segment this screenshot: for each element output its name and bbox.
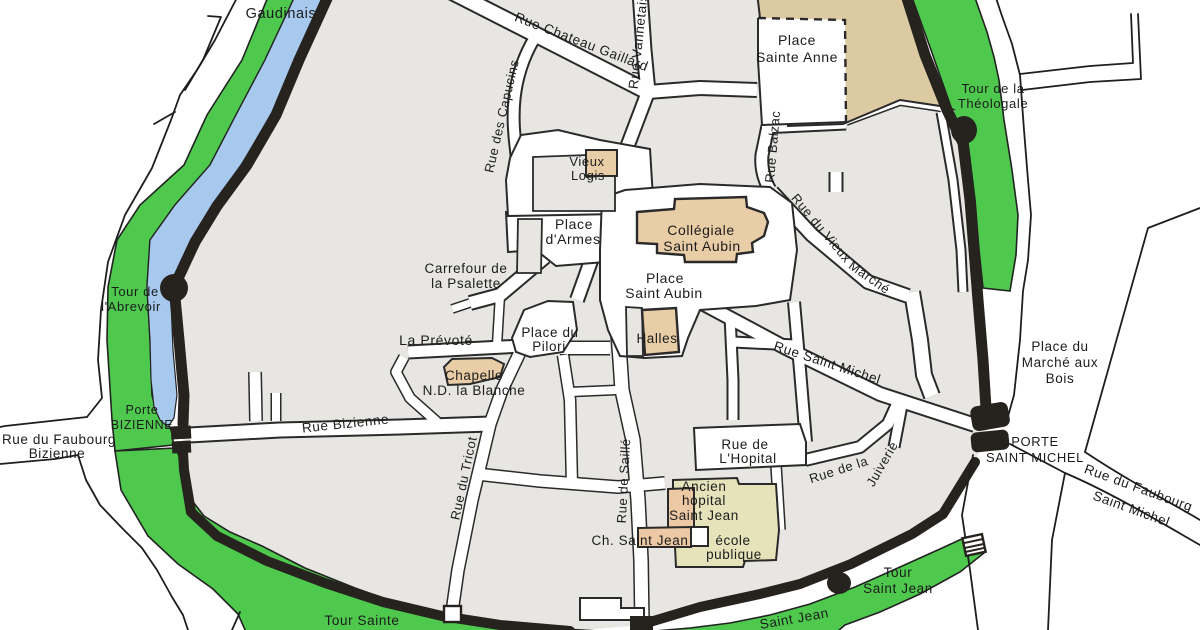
svg-text:Saint Aubin: Saint Aubin (663, 238, 740, 254)
svg-text:Tour Sainte: Tour Sainte (325, 613, 400, 628)
svg-text:PORTE: PORTE (1011, 434, 1059, 449)
svg-text:Tour: Tour (884, 565, 913, 580)
svg-text:hopital: hopital (682, 493, 726, 508)
svg-text:Gaudinais: Gaudinais (246, 6, 317, 22)
svg-text:Chapelle: Chapelle (445, 368, 503, 383)
svg-text:Marché aux: Marché aux (1022, 355, 1099, 370)
svg-text:Place: Place (555, 216, 593, 232)
svg-text:Place du: Place du (521, 325, 578, 340)
svg-text:Bois: Bois (1046, 371, 1075, 386)
svg-text:Carrefour de: Carrefour de (425, 261, 508, 276)
svg-text:publique: publique (706, 547, 762, 562)
svg-text:BIZIENNE: BIZIENNE (111, 418, 173, 432)
svg-text:Saint Aubin: Saint Aubin (625, 285, 702, 301)
svg-text:L'Hopital: L'Hopital (719, 451, 777, 466)
svg-text:Porte: Porte (126, 403, 159, 417)
svg-text:Place: Place (778, 32, 816, 48)
svg-text:SAINT MICHEL: SAINT MICHEL (986, 450, 1084, 465)
svg-text:Tour de la: Tour de la (961, 81, 1024, 96)
svg-text:Logis: Logis (571, 168, 605, 183)
svg-text:Rue de: Rue de (721, 437, 768, 452)
svg-text:Place du: Place du (1031, 339, 1088, 354)
svg-text:Vieux: Vieux (569, 154, 604, 169)
svg-text:Théologale: Théologale (958, 96, 1028, 111)
svg-text:Bizienne: Bizienne (29, 446, 86, 461)
svg-text:Saint Jean: Saint Jean (669, 508, 739, 523)
svg-text:Saint Jean: Saint Jean (863, 581, 933, 596)
svg-text:d'Armes: d'Armes (545, 231, 600, 247)
svg-text:Sainte Anne: Sainte Anne (756, 49, 838, 65)
svg-text:Ch. Saint Jean: Ch. Saint Jean (592, 533, 689, 548)
svg-text:Halles: Halles (636, 331, 677, 346)
svg-text:Ancien: Ancien (682, 479, 727, 494)
svg-text:la Psalette: la Psalette (431, 276, 501, 291)
svg-text:N.D. la Blanche: N.D. la Blanche (423, 383, 526, 398)
svg-text:l'Abrevoir: l'Abrevoir (101, 299, 161, 314)
svg-text:Rue du Faubourg: Rue du Faubourg (2, 432, 116, 447)
svg-text:Collégiale: Collégiale (667, 222, 734, 238)
svg-text:Place: Place (646, 270, 684, 286)
svg-text:école: école (715, 533, 750, 548)
svg-text:Tour de: Tour de (111, 284, 159, 299)
svg-text:La Prévoté: La Prévoté (399, 332, 473, 348)
svg-text:Pilori: Pilori (532, 339, 566, 354)
